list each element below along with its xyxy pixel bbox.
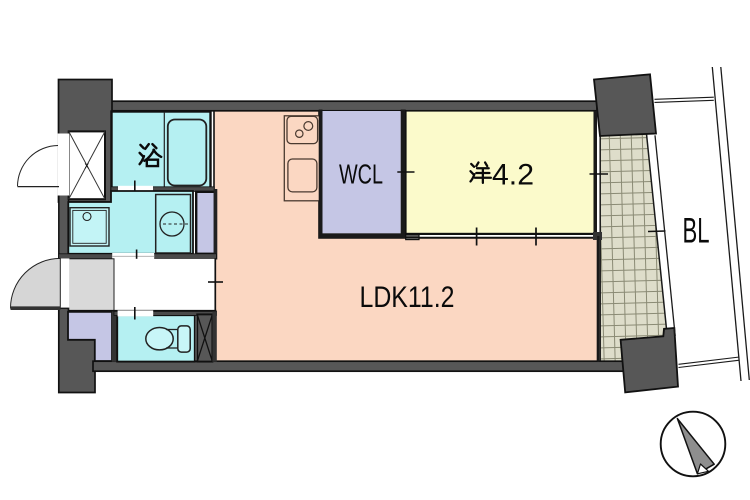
svg-text:x: x (85, 161, 90, 171)
svg-text:LDK11.2: LDK11.2 (360, 281, 455, 314)
svg-text:WCL: WCL (339, 159, 383, 190)
svg-text:4.2: 4.2 (492, 159, 534, 192)
svg-text:BL: BL (683, 212, 710, 251)
